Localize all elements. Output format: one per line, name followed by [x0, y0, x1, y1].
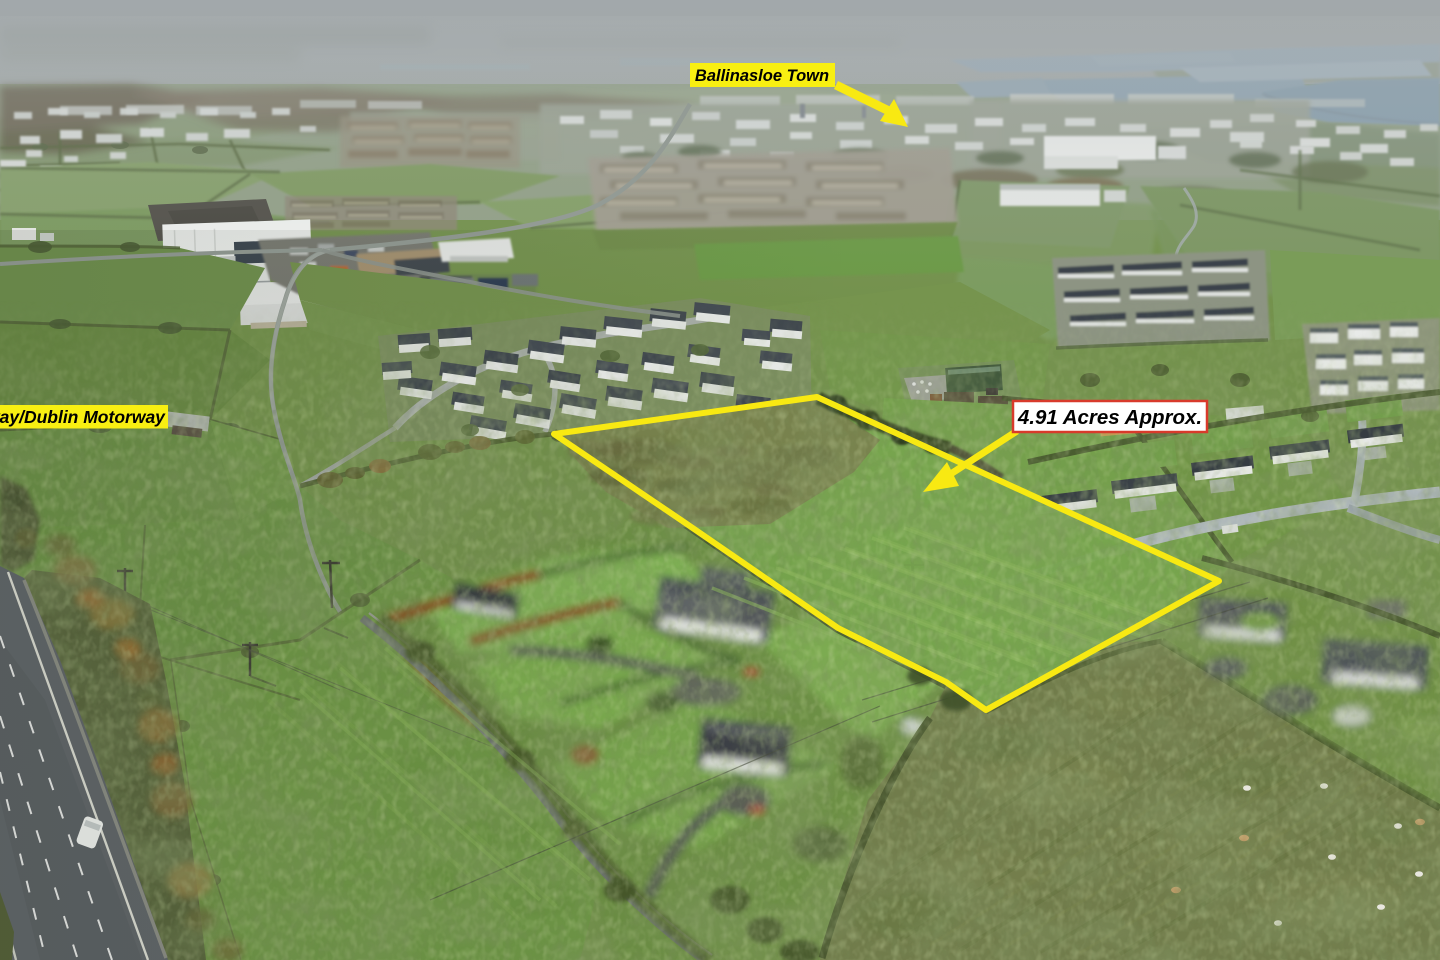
- svg-text:4.91 Acres Approx.: 4.91 Acres Approx.: [1017, 406, 1202, 429]
- svg-text:way/Dublin Motorway: way/Dublin Motorway: [0, 407, 166, 427]
- svg-text:Ballinasloe Town: Ballinasloe Town: [695, 67, 829, 85]
